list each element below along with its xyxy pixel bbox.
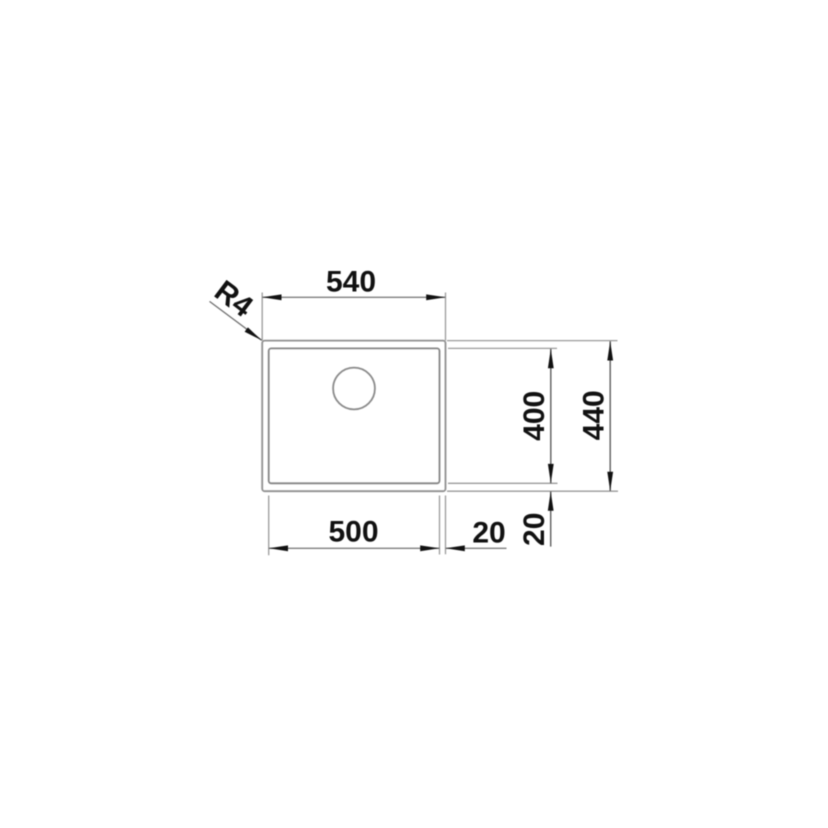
svg-text:540: 540 <box>326 266 376 299</box>
svg-text:20: 20 <box>518 513 551 546</box>
svg-text:440: 440 <box>577 390 610 440</box>
svg-text:400: 400 <box>518 391 551 441</box>
svg-text:R4: R4 <box>208 274 259 324</box>
svg-text:500: 500 <box>328 516 378 549</box>
svg-text:20: 20 <box>472 517 505 550</box>
